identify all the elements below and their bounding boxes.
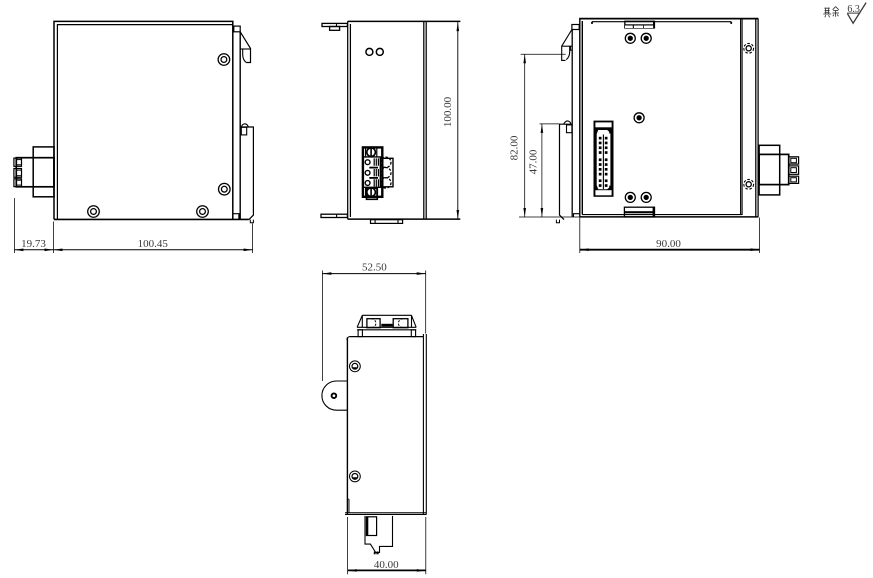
svg-text:6.3: 6.3 xyxy=(847,4,860,15)
svg-text:90.00: 90.00 xyxy=(656,238,681,250)
svg-text:100.00: 100.00 xyxy=(442,96,454,127)
svg-text:47.00: 47.00 xyxy=(528,149,540,174)
svg-text:100.45: 100.45 xyxy=(138,238,169,250)
svg-text:52.50: 52.50 xyxy=(362,262,387,274)
svg-text:19.73: 19.73 xyxy=(21,238,46,250)
svg-text:82.00: 82.00 xyxy=(508,135,520,160)
svg-text:40.00: 40.00 xyxy=(374,559,399,571)
